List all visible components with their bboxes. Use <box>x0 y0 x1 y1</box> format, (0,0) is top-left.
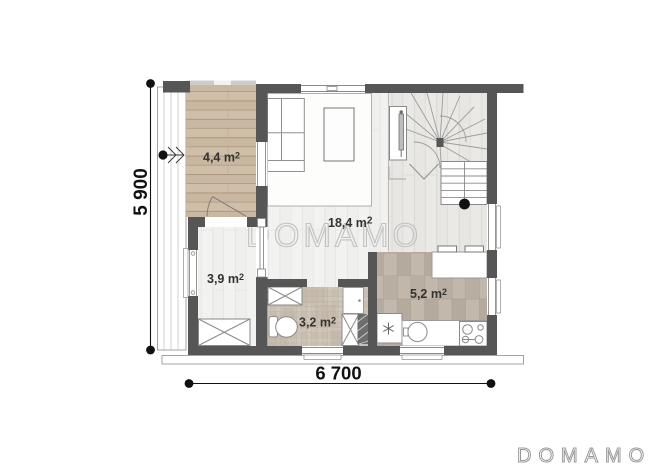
svg-text:5 900: 5 900 <box>131 168 152 216</box>
svg-text:18,4 m2: 18,4 m2 <box>328 216 373 231</box>
svg-text:6 700: 6 700 <box>315 363 361 384</box>
svg-text:4,4 m2: 4,4 m2 <box>203 151 240 165</box>
svg-text:5,2 m2: 5,2 m2 <box>410 287 447 301</box>
svg-text:3,9 m2: 3,9 m2 <box>207 272 244 286</box>
svg-text:DOMAMO: DOMAMO <box>517 445 651 467</box>
svg-text:3,2 m2: 3,2 m2 <box>299 316 336 330</box>
